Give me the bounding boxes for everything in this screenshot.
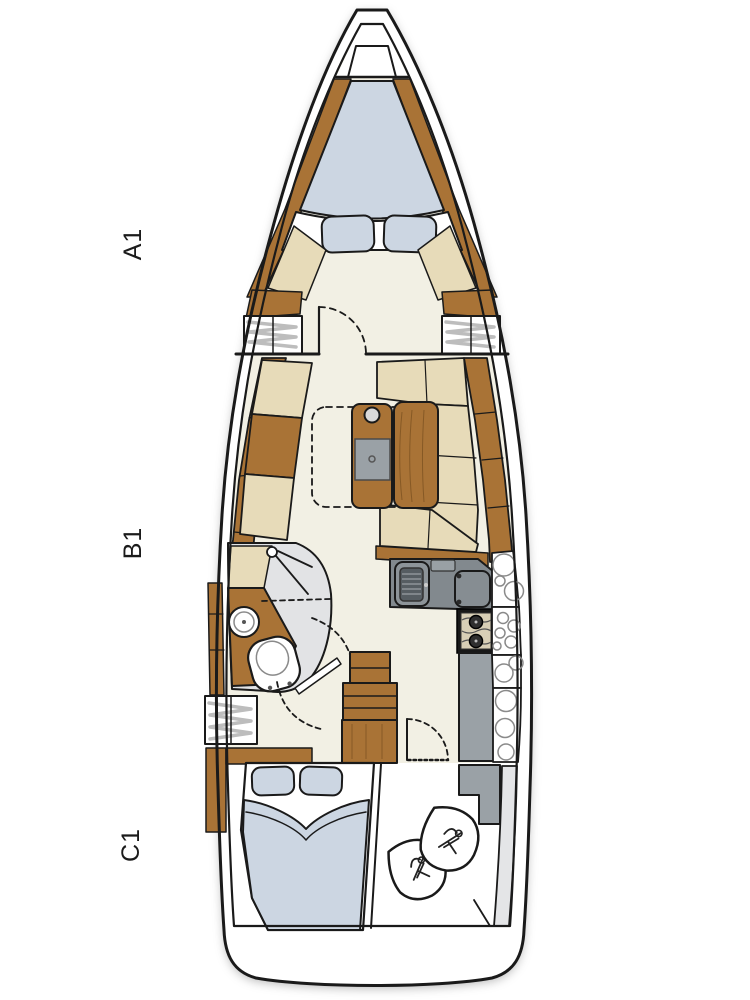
pillow bbox=[300, 766, 343, 795]
anchor-locker-hatch bbox=[348, 46, 396, 77]
galley-sink bbox=[395, 562, 429, 606]
hanging-locker-aft bbox=[205, 696, 257, 744]
yacht-floorplan: A1 B1 C1 bbox=[0, 0, 750, 1000]
wood-shelf-starboard bbox=[442, 290, 498, 318]
fridge bbox=[455, 571, 490, 607]
settee-port-back bbox=[252, 360, 312, 418]
table-inset bbox=[355, 439, 390, 480]
settee-port-seat bbox=[245, 414, 302, 478]
label-aft-cabin: C1 bbox=[117, 828, 145, 862]
washbasin bbox=[229, 607, 259, 637]
label-saloon: B1 bbox=[119, 527, 147, 560]
label-forward-cabin: A1 bbox=[119, 228, 147, 261]
galley-stowage-cells bbox=[492, 551, 524, 762]
galley-lower-counter bbox=[459, 653, 496, 761]
settee-starboard-back bbox=[377, 358, 468, 406]
pillow bbox=[321, 215, 374, 253]
pillow bbox=[252, 766, 295, 795]
settee-port-cushion bbox=[240, 474, 294, 540]
section-labels: A1 B1 C1 bbox=[117, 228, 147, 862]
table-post bbox=[365, 408, 380, 423]
berth-head-shelf bbox=[226, 748, 312, 764]
saloon-table bbox=[352, 402, 438, 508]
vanity-top bbox=[228, 546, 272, 588]
companionway-stairs bbox=[342, 652, 397, 763]
table-leaf-right bbox=[394, 402, 438, 508]
cutting-board bbox=[431, 560, 455, 571]
stove bbox=[457, 609, 495, 653]
